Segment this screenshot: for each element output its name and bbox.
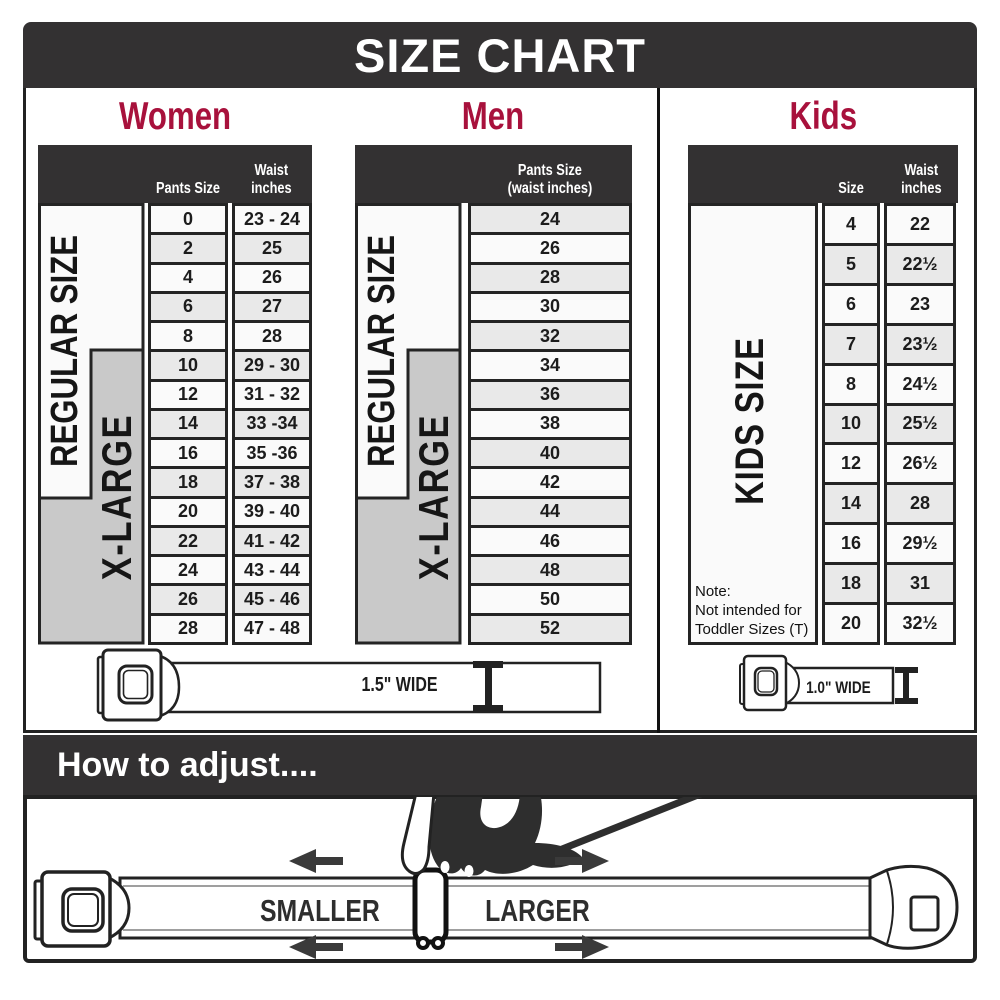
table-cell: 16 bbox=[825, 525, 877, 562]
women-regular-size-label: REGULAR SIZE bbox=[42, 220, 88, 482]
larger-label: LARGER bbox=[465, 893, 610, 929]
table-cell: 52 bbox=[471, 616, 629, 642]
table-cell: 23½ bbox=[887, 326, 953, 363]
table-cell: 20 bbox=[825, 605, 877, 642]
table-cell: 31 - 32 bbox=[235, 382, 309, 408]
table-cell: 14 bbox=[151, 411, 225, 437]
table-cell: 7 bbox=[825, 326, 877, 363]
table-cell: 8 bbox=[151, 323, 225, 349]
table-cell: 5 bbox=[825, 246, 877, 283]
table-cell: 31 bbox=[887, 565, 953, 602]
table-cell: 28 bbox=[235, 323, 309, 349]
table-cell: 27 bbox=[235, 294, 309, 320]
table-cell: 25½ bbox=[887, 406, 953, 443]
table-cell: 2 bbox=[151, 235, 225, 261]
table-cell: 44 bbox=[471, 499, 629, 525]
table-cell: 12 bbox=[151, 382, 225, 408]
table-cell: 30 bbox=[471, 294, 629, 320]
table-cell: 43 - 44 bbox=[235, 557, 309, 583]
table-cell: 22 bbox=[887, 206, 953, 243]
table-cell: 38 bbox=[471, 411, 629, 437]
men-table-header: Pants Size (waist inches) bbox=[355, 145, 632, 203]
table-cell: 20 bbox=[151, 499, 225, 525]
kids-table: Size Waist inches KIDS SIZE Note: Not in… bbox=[688, 145, 958, 645]
table-cell: 28 bbox=[471, 265, 629, 291]
table-cell: 16 bbox=[151, 440, 225, 466]
men-regular-size-label: REGULAR SIZE bbox=[359, 220, 405, 482]
table-cell: 46 bbox=[471, 528, 629, 554]
title-banner: SIZE CHART bbox=[23, 22, 977, 88]
table-cell: 10 bbox=[825, 406, 877, 443]
adult-seatbelt-buckle-icon bbox=[98, 650, 179, 720]
table-cell: 10 bbox=[151, 352, 225, 378]
women-xlarge-label: X-LARGE bbox=[94, 366, 140, 628]
kids-waist-header: Waist inches bbox=[884, 162, 958, 198]
kids-table-header: Size Waist inches bbox=[688, 145, 958, 203]
women-waist-header: Waist inches bbox=[230, 162, 312, 198]
table-cell: 50 bbox=[471, 586, 629, 612]
section-divider bbox=[657, 88, 660, 733]
table-cell: 24 bbox=[151, 557, 225, 583]
women-table-body: REGULAR SIZE X-LARGE 0246810121416182022… bbox=[38, 203, 312, 645]
table-cell: 28 bbox=[887, 485, 953, 522]
kids-size-column: 45678101214161820 bbox=[822, 203, 880, 645]
table-cell: 6 bbox=[825, 286, 877, 323]
women-pants-size-column: 0246810121416182022242628 bbox=[148, 203, 228, 645]
table-cell: 26 bbox=[471, 235, 629, 261]
men-pants-size-column: 242628303234363840424446485052 bbox=[468, 203, 632, 645]
table-cell: 22 bbox=[151, 528, 225, 554]
table-cell: 33 -34 bbox=[235, 411, 309, 437]
table-cell: 32 bbox=[471, 323, 629, 349]
women-table: Pants Size Waist inches REGULAR SIZE X-L… bbox=[38, 145, 312, 645]
men-xlarge-label: X-LARGE bbox=[411, 366, 457, 628]
table-cell: 8 bbox=[825, 366, 877, 403]
table-cell: 24½ bbox=[887, 366, 953, 403]
table-cell: 47 - 48 bbox=[235, 616, 309, 642]
table-cell: 18 bbox=[825, 565, 877, 602]
table-cell: 32½ bbox=[887, 605, 953, 642]
table-cell: 18 bbox=[151, 469, 225, 495]
table-cell: 28 bbox=[151, 616, 225, 642]
table-cell: 37 - 38 bbox=[235, 469, 309, 495]
size-chart-page: SIZE CHART Women Men Kids Pants Size Wai… bbox=[0, 0, 1000, 1000]
men-section-title: Men bbox=[393, 94, 593, 140]
table-cell: 34 bbox=[471, 352, 629, 378]
table-cell: 26 bbox=[235, 265, 309, 291]
kids-size-header: Size bbox=[822, 180, 880, 198]
table-cell: 48 bbox=[471, 557, 629, 583]
table-cell: 29 - 30 bbox=[235, 352, 309, 378]
table-cell: 26 bbox=[151, 586, 225, 612]
adult-belt-width-label: 1.5" WIDE bbox=[330, 674, 470, 697]
table-cell: 29½ bbox=[887, 525, 953, 562]
table-cell: 6 bbox=[151, 294, 225, 320]
table-cell: 26½ bbox=[887, 445, 953, 482]
belt-tongue-icon bbox=[870, 866, 957, 948]
men-table-body: REGULAR SIZE X-LARGE 2426283032343638404… bbox=[355, 203, 632, 645]
men-table: Pants Size (waist inches) REGULAR SIZE X… bbox=[355, 145, 632, 645]
table-cell: 35 -36 bbox=[235, 440, 309, 466]
table-cell: 12 bbox=[825, 445, 877, 482]
table-cell: 36 bbox=[471, 382, 629, 408]
kids-belt-width-label: 1.0" WIDE bbox=[788, 678, 888, 698]
kids-waist-column: 2222½2323½24½25½26½2829½3132½ bbox=[884, 203, 956, 645]
page-title: SIZE CHART bbox=[354, 28, 646, 83]
table-cell: 24 bbox=[471, 206, 629, 232]
table-cell: 42 bbox=[471, 469, 629, 495]
kids-section-title: Kids bbox=[723, 94, 923, 140]
smaller-arrow-top-icon bbox=[289, 849, 343, 873]
table-cell: 23 bbox=[887, 286, 953, 323]
kids-note: Note: Not intended for Toddler Sizes (T) bbox=[695, 582, 808, 639]
table-cell: 40 bbox=[471, 440, 629, 466]
women-waist-column: 23 - 242526272829 - 3031 - 3233 -3435 -3… bbox=[232, 203, 312, 645]
table-cell: 4 bbox=[825, 206, 877, 243]
kids-belt-width-indicator-icon bbox=[895, 667, 918, 704]
smaller-label: SMALLER bbox=[245, 893, 385, 929]
table-cell: 39 - 40 bbox=[235, 499, 309, 525]
table-cell: 0 bbox=[151, 206, 225, 232]
adjust-seatbelt-buckle-icon bbox=[35, 872, 129, 946]
kids-table-body: KIDS SIZE Note: Not intended for Toddler… bbox=[688, 203, 958, 645]
table-cell: 25 bbox=[235, 235, 309, 261]
women-section-title: Women bbox=[75, 94, 275, 140]
table-cell: 23 - 24 bbox=[235, 206, 309, 232]
table-cell: 45 - 46 bbox=[235, 586, 309, 612]
table-cell: 14 bbox=[825, 485, 877, 522]
how-to-adjust-illustration bbox=[25, 797, 975, 961]
belt-slider-icon bbox=[415, 870, 446, 948]
how-to-adjust-bar: How to adjust.... bbox=[23, 735, 977, 795]
kids-size-label: KIDS SIZE bbox=[727, 290, 773, 552]
women-table-header: Pants Size Waist inches bbox=[38, 145, 312, 203]
table-cell: 22½ bbox=[887, 246, 953, 283]
table-cell: 4 bbox=[151, 265, 225, 291]
how-to-adjust-title: How to adjust.... bbox=[57, 746, 318, 785]
women-pants-size-header: Pants Size bbox=[144, 180, 232, 198]
men-pants-size-header: Pants Size (waist inches) bbox=[468, 162, 632, 198]
table-cell: 41 - 42 bbox=[235, 528, 309, 554]
